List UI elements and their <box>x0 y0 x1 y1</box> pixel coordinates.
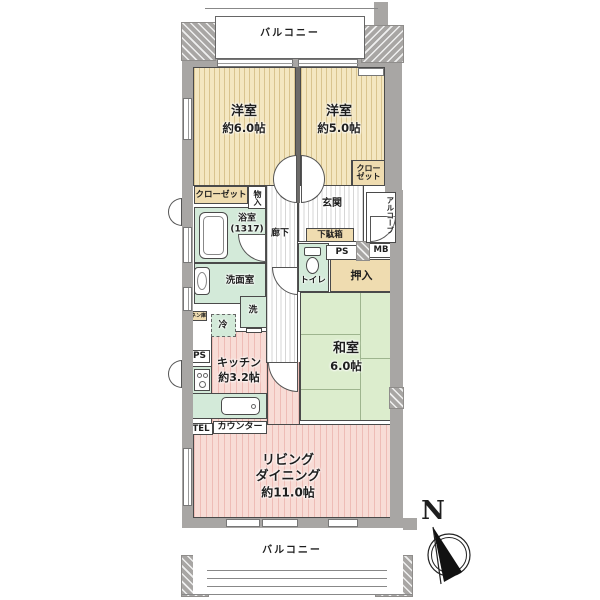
western5-size: 約5.0帖 <box>317 121 360 135</box>
window-left-washroom <box>183 287 192 311</box>
window-notch <box>358 68 384 76</box>
kitchen-name: キッチン <box>217 356 261 370</box>
vent-box <box>246 328 262 333</box>
living-line3: 約11.0帖 <box>261 486 315 501</box>
door-arc-left-exterior-2 <box>168 360 182 388</box>
bath-size: (1317) <box>230 224 263 235</box>
toilet-bowl-icon <box>306 257 319 274</box>
wall-right-upper <box>385 58 402 192</box>
living-line1: リビング <box>262 453 314 469</box>
wall-hatch-ps-mb <box>357 242 369 260</box>
washer-label: 洗 <box>248 305 257 316</box>
window-left-living <box>183 448 192 506</box>
window-bottom-2 <box>262 519 298 527</box>
tatami-grid-line <box>301 334 360 335</box>
western6-name: 洋室 <box>231 104 257 120</box>
window-left-bath <box>183 227 192 263</box>
pipe-space-right: PS <box>326 245 358 260</box>
mono-ire-label: 物入 <box>253 190 261 206</box>
kitchen-sink-icon <box>221 397 260 415</box>
toilet-label: トイレ <box>300 276 326 287</box>
washroom-label: 洗面室 <box>226 275 255 287</box>
balcony-outer-bottom-line <box>182 594 412 595</box>
alcove-label: アルコーブ <box>385 196 394 234</box>
corridor-label: 廊下 <box>271 228 289 239</box>
balcony-rail-line <box>207 586 387 587</box>
counter-label-box: カウンター <box>213 421 267 434</box>
door-arc-left-exterior-1 <box>168 198 182 226</box>
window-bottom-1 <box>226 519 260 527</box>
compass-icon: N <box>408 488 498 598</box>
japanese-name: 和室 <box>333 341 359 357</box>
tatami-grid-line <box>360 293 361 420</box>
window-bottom-3 <box>328 519 358 527</box>
balcony-top-label: バルコニー <box>260 28 320 41</box>
tatami-grid-line <box>361 358 393 359</box>
bathtub-icon <box>199 212 228 259</box>
window-top-right <box>298 59 358 67</box>
western5-name: 洋室 <box>326 104 352 120</box>
stove-icon <box>194 369 210 391</box>
wall-corner-topleft <box>182 23 215 60</box>
living-line2: ダイニング <box>255 469 320 485</box>
entrance-label: 玄関 <box>322 198 342 211</box>
closet-west: クローゼット <box>194 186 248 204</box>
balcony-rail-line <box>207 570 387 571</box>
window-top-left <box>217 59 293 67</box>
balcony-outer-line <box>205 8 378 9</box>
kitchen-size: 約3.2帖 <box>218 371 260 385</box>
shoe-cabinet: 下駄箱 <box>306 228 354 242</box>
wall-corner-topright <box>362 26 403 62</box>
western6-size: 約6.0帖 <box>222 121 265 135</box>
balcony-bottom <box>193 528 403 594</box>
oshiire-closet: 押入 <box>330 259 393 292</box>
balcony-rail-line <box>207 578 387 579</box>
closet-northeast: クロー ゼット <box>352 160 385 186</box>
closet-ne-line2: ゼット <box>357 173 381 181</box>
balcony-bottom-label: バルコニー <box>262 545 322 558</box>
window-left-bedroom <box>183 98 192 140</box>
toilet-tank-icon <box>304 247 321 256</box>
wall-hatch-right <box>390 388 403 408</box>
fridge-label: 冷 <box>218 320 227 331</box>
tatami-grid-line <box>301 389 360 390</box>
japanese-size: 6.0帖 <box>330 359 362 373</box>
storage-mono-ire: 物入 <box>248 186 266 209</box>
compass-graphic <box>408 488 498 598</box>
bath-name: 浴室 <box>238 213 256 224</box>
floor-plan: クローゼット 物入 クロー ゼット 下駄箱 押入 リネン庫 PS MB PS T… <box>0 0 600 600</box>
washbasin-icon <box>194 267 210 295</box>
